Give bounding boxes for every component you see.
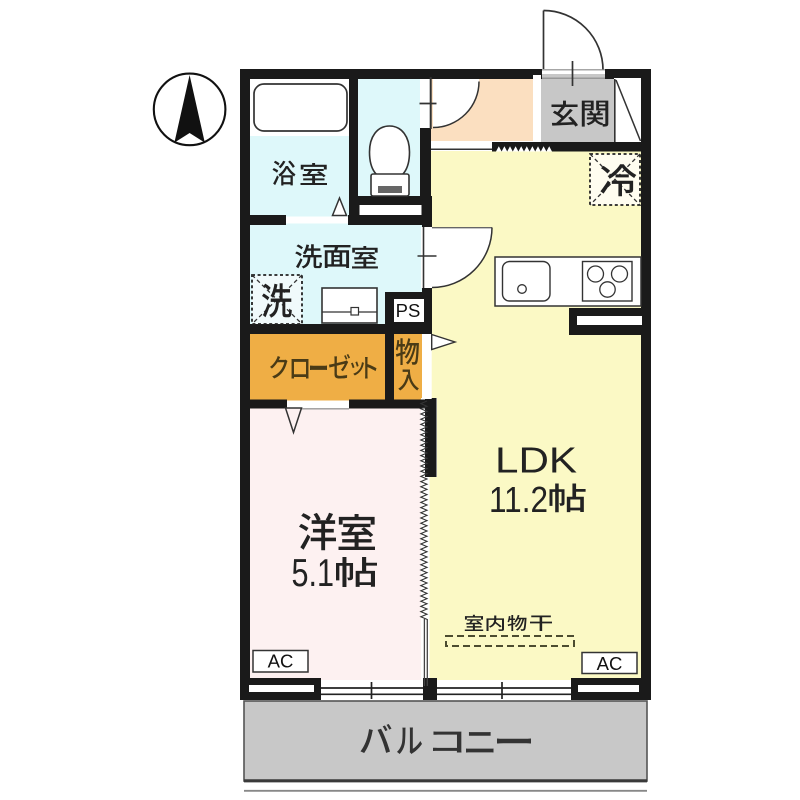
svg-text:5.1: 5.1	[292, 552, 335, 595]
svg-text:LDK: LDK	[495, 440, 577, 481]
svg-text:PS: PS	[396, 300, 421, 321]
svg-text:AC: AC	[268, 651, 294, 672]
svg-text:AC: AC	[597, 653, 623, 674]
svg-text:11.2: 11.2	[489, 479, 548, 520]
